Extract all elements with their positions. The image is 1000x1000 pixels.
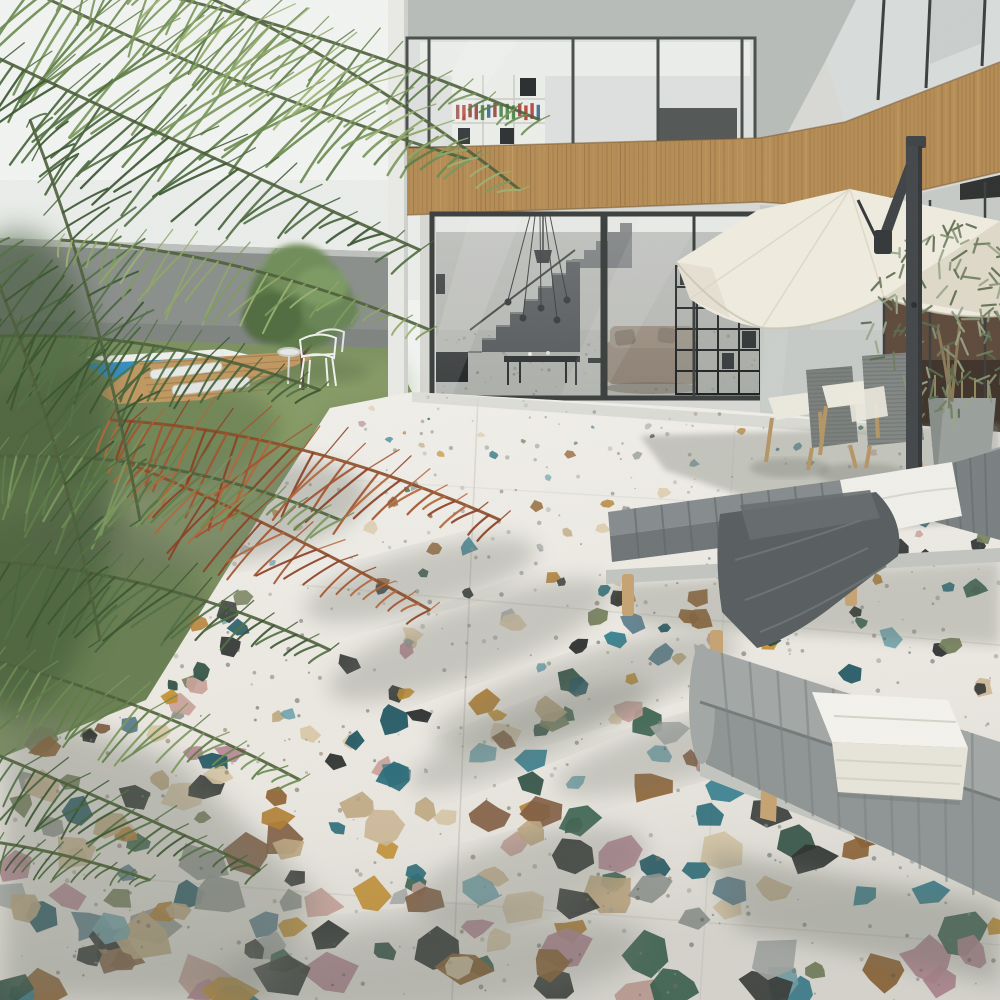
patio-scene [0,0,1000,1000]
photo-grain [0,0,1000,1000]
scene-canvas [0,0,1000,1000]
